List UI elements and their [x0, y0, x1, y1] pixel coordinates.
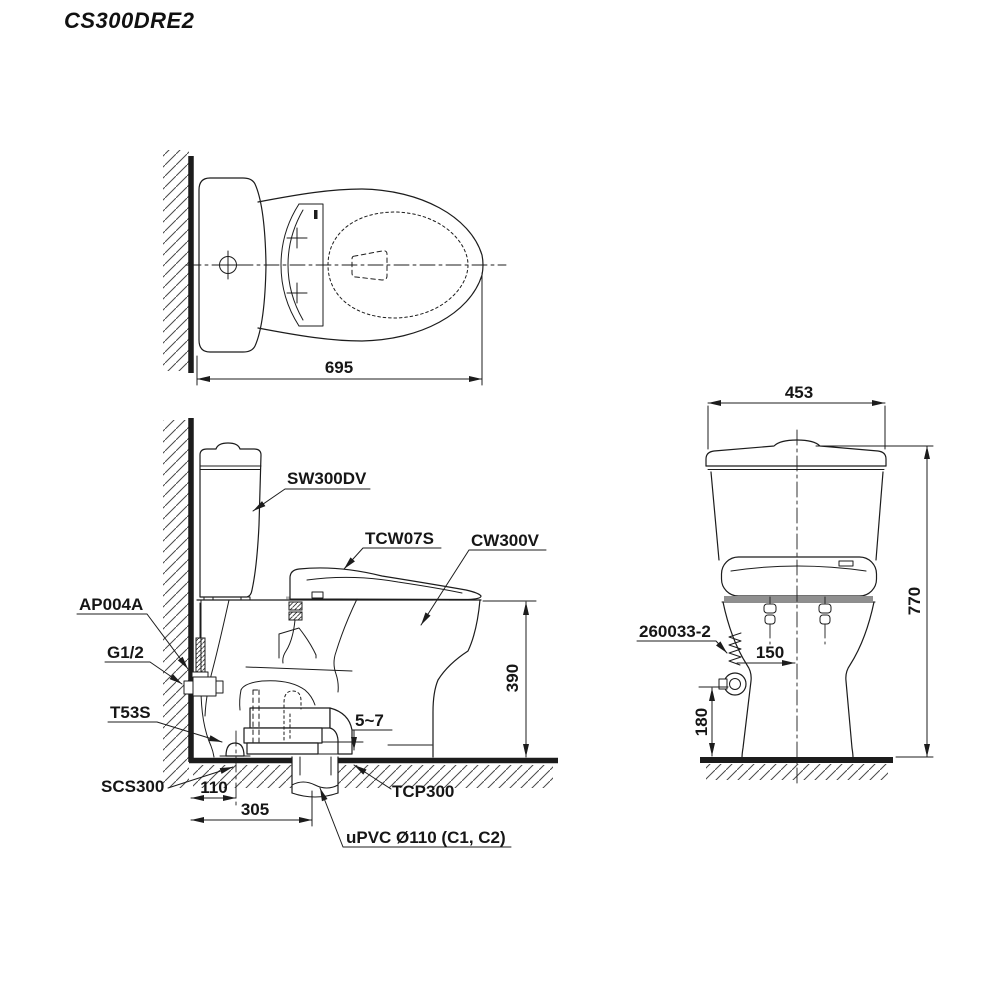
washlet-side — [290, 568, 481, 600]
dim-gap: 5~7 — [355, 711, 384, 730]
dim-695-group: 695 — [197, 273, 482, 385]
cistern-side — [200, 443, 261, 600]
label-inlet-pipe: AP004A — [79, 595, 143, 614]
label-floor-flange: SCS300 — [101, 777, 164, 796]
front-leaders: 260033-2 — [637, 622, 727, 653]
plan-view: 695 — [163, 150, 506, 385]
side-view: 390 5~7 110 305 SW300DV TCW07S — [77, 418, 558, 847]
seat-front — [722, 557, 877, 602]
label-floor-fixing: T53S — [110, 703, 151, 722]
dim-height: 770 — [905, 587, 924, 615]
label-cistern: SW300DV — [287, 469, 367, 488]
seat-bolts — [764, 597, 831, 644]
front-view: 453 770 150 180 260033-2 — [637, 383, 933, 786]
dim-390-group: 390 — [483, 601, 536, 757]
label-thread: G1/2 — [107, 643, 144, 662]
dim-overall-depth: 695 — [325, 358, 353, 377]
drawing-sheet: CS300DRE2 — [0, 0, 1000, 1000]
dim-453-group: 453 — [708, 383, 885, 449]
label-washlet: TCW07S — [365, 529, 434, 548]
bowl-profile — [433, 600, 480, 757]
dim-width: 453 — [785, 383, 813, 402]
floor-front — [700, 760, 893, 780]
supply-hose-front — [719, 633, 746, 695]
cistern-front — [706, 440, 886, 560]
dim-180-group: 180 — [692, 687, 728, 756]
label-bowl: CW300V — [471, 531, 540, 550]
dim-valve-offset: 150 — [756, 643, 784, 662]
dim-valve-height: 180 — [692, 708, 711, 736]
dim-150-group: 150 — [737, 643, 795, 663]
dim-bowl-height: 390 — [503, 664, 522, 692]
label-outlet-socket: TCP300 — [392, 782, 454, 801]
technical-drawing: 695 — [0, 0, 1000, 1000]
wall-section — [163, 150, 191, 373]
dim-fixing-offset: 110 — [200, 778, 227, 797]
dim-drain-offset: 305 — [241, 800, 269, 819]
label-drain-pipe: uPVC Ø110 (C1, C2) — [346, 828, 506, 847]
label-supply-hose: 260033-2 — [639, 622, 711, 641]
